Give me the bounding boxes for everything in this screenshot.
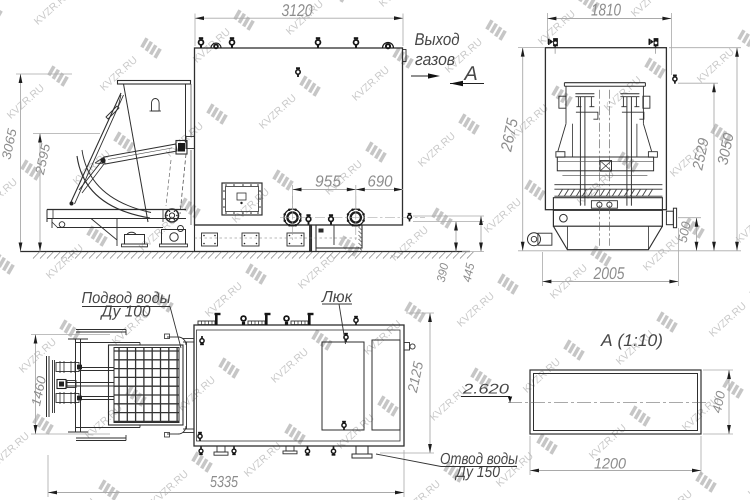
svg-text:Люк: Люк: [321, 289, 353, 306]
svg-text:2.620: 2.620: [462, 381, 510, 397]
svg-text:955: 955: [315, 174, 341, 191]
svg-text:А (1:10): А (1:10): [600, 331, 663, 350]
svg-text:2005: 2005: [593, 264, 625, 283]
svg-text:1810: 1810: [591, 1, 621, 20]
svg-text:1200: 1200: [594, 456, 627, 473]
svg-text:Выход: Выход: [415, 30, 460, 49]
svg-text:3120: 3120: [282, 1, 313, 20]
svg-text:А: А: [463, 63, 477, 85]
svg-text:690: 690: [368, 174, 393, 191]
svg-text:5335: 5335: [210, 474, 238, 491]
svg-text:газов: газов: [415, 50, 455, 69]
